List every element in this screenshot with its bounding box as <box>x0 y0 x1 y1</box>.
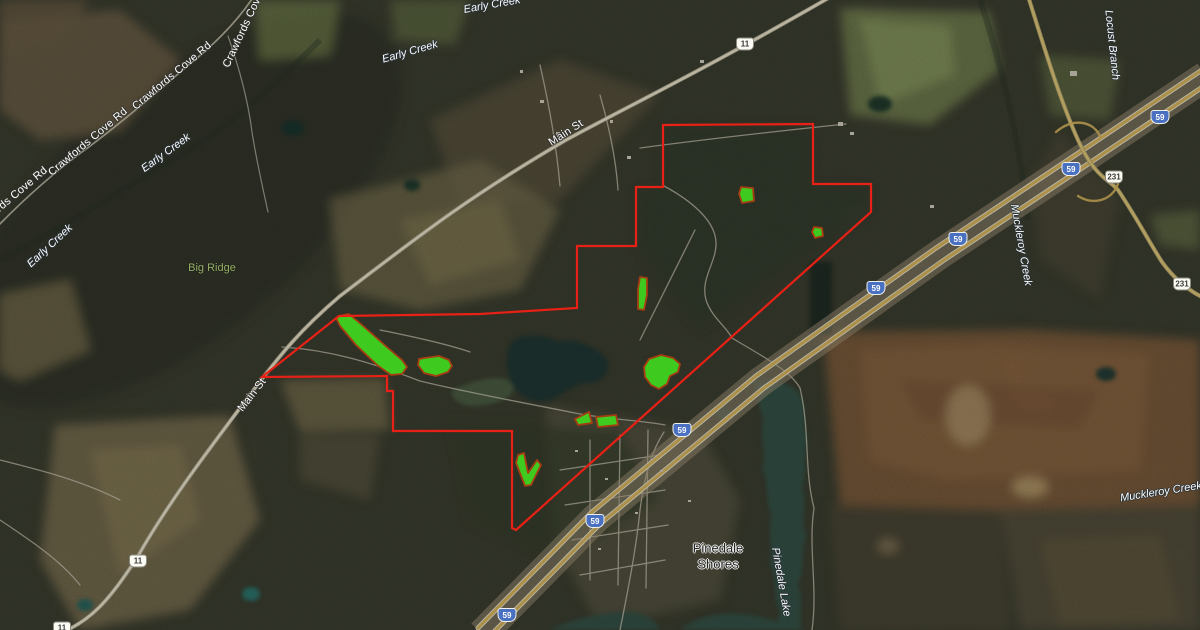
food-plot-polygon <box>516 453 541 486</box>
parcel-overlay <box>0 0 1200 630</box>
food-plot-polygon <box>575 412 592 425</box>
food-plot-polygon <box>644 355 680 389</box>
food-plot-polygon <box>596 415 618 427</box>
food-plot-layer <box>336 187 823 486</box>
food-plot-polygon <box>638 277 647 310</box>
food-plot-polygon <box>418 356 452 376</box>
food-plot-polygon <box>336 314 407 375</box>
food-plot-polygon <box>739 187 754 203</box>
satellite-map[interactable]: Crawfords Cove RdCrawfords Cove RdCrawfo… <box>0 0 1200 630</box>
food-plot-polygon <box>812 227 823 238</box>
